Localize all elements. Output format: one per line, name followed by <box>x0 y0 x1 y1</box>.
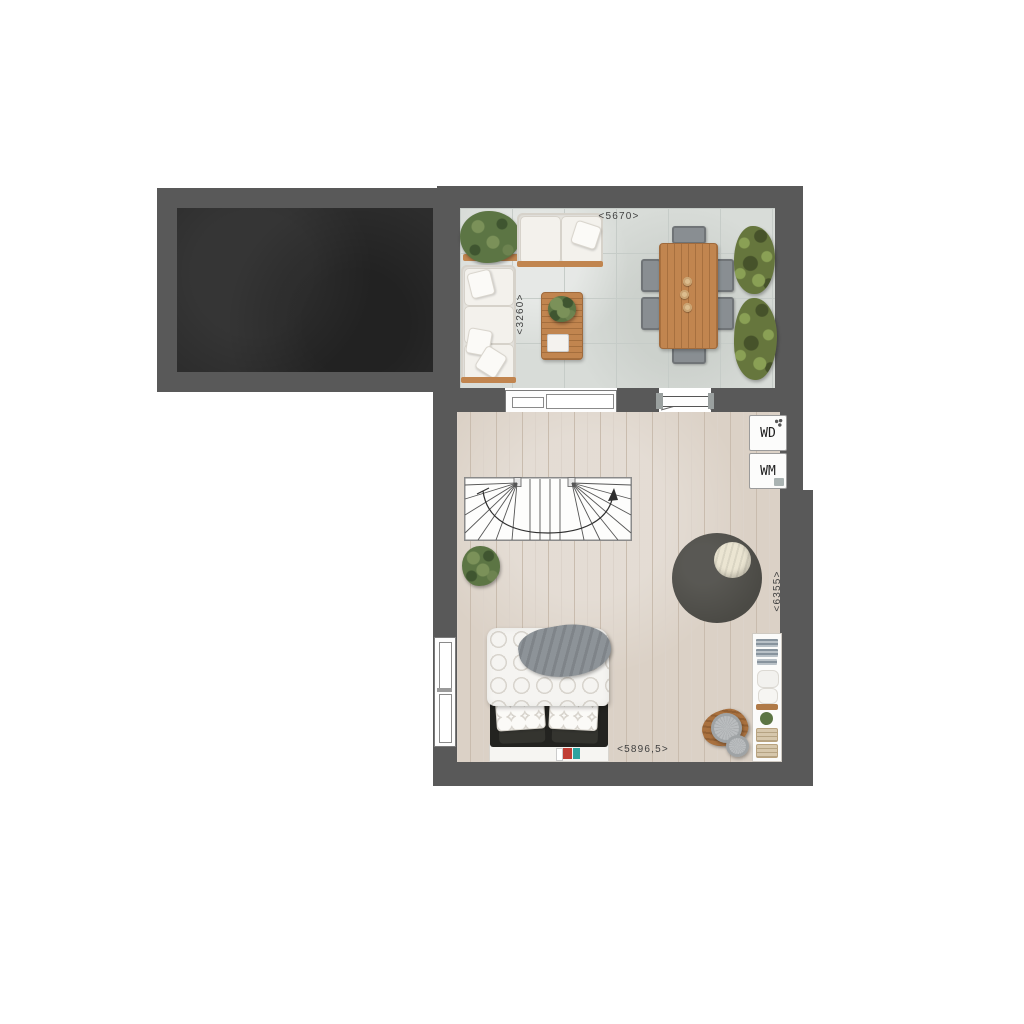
folded-towels <box>757 659 777 665</box>
dimension-label-studio-depth: <6355> <box>772 556 786 626</box>
floor-plan: <5670> <3260> WD <box>0 0 1024 1024</box>
terrace-wall-right <box>775 186 803 408</box>
table-candle <box>683 303 692 312</box>
sofa-left-wood-trim <box>461 377 516 383</box>
round-stool-small <box>726 735 749 757</box>
terrace-wall-top <box>437 186 803 208</box>
bench-book-white <box>556 748 563 761</box>
sofa-top-wood-trim <box>517 261 603 267</box>
terrace-door-hinge <box>656 393 663 409</box>
hedge-plant-lower <box>734 298 777 380</box>
table-candle <box>680 290 689 299</box>
bench-book-teal <box>573 748 580 759</box>
washer-dryer-label: WD <box>760 426 776 441</box>
sofa-left-section <box>461 265 516 383</box>
dimension-label-terrace-depth: <3260> <box>515 279 529 349</box>
dining-chair-left-2 <box>641 297 661 330</box>
hedge-plant-upper <box>734 226 775 294</box>
dryer-knob-dots <box>775 419 783 427</box>
folded-towels <box>756 649 778 657</box>
storage-basket <box>756 744 778 758</box>
shelf-wood-board <box>756 704 778 710</box>
terrace-window-pane-large <box>546 394 614 409</box>
garage-terrace-divider-wall <box>433 188 460 412</box>
dining-chair-left-1 <box>641 259 661 292</box>
dining-chair-top <box>672 226 706 244</box>
studio-wall-right-lower <box>780 490 813 786</box>
garage-wall-top <box>157 188 460 208</box>
washing-machine-unit: WM <box>749 453 787 489</box>
studio-wall-bottom <box>433 762 813 786</box>
studio-floor-plant <box>462 546 500 586</box>
terrace-window-pane-small <box>512 397 544 408</box>
studio-left-window <box>434 637 456 747</box>
staircase <box>464 477 632 541</box>
terrace-door-leaf <box>661 396 709 407</box>
garage-wall-bottom <box>157 372 460 392</box>
storage-basket <box>756 728 778 742</box>
terrace-window <box>505 390 617 413</box>
table-candle <box>683 277 692 286</box>
shelf-plant <box>760 712 773 725</box>
sofa-cushion <box>520 216 561 264</box>
studio-left-window-pane-top <box>439 642 452 691</box>
coffee-table-tray <box>547 334 569 352</box>
washing-machine-label: WM <box>760 464 776 479</box>
washer-dryer-unit: WD <box>749 415 787 451</box>
dimension-label-studio-width: <5896,5> <box>608 744 678 758</box>
window-handle <box>437 688 452 692</box>
studio-left-window-pane-bottom <box>439 694 452 743</box>
folded-towels <box>756 639 778 647</box>
garage-floor <box>177 208 433 372</box>
dimension-label-terrace-width: <5670> <box>584 211 654 225</box>
coffee-table-plant <box>548 296 576 322</box>
terrace-door-latch <box>708 393 714 409</box>
beanbag-chair <box>714 542 751 578</box>
washer-detail <box>774 478 784 486</box>
towel-roll <box>757 670 779 688</box>
bench-book-red <box>563 748 572 759</box>
round-rug <box>672 533 762 623</box>
garage-wall-left <box>157 188 177 392</box>
shelf-unit <box>752 633 782 762</box>
towel-roll <box>758 688 778 704</box>
terrace-corner-plant <box>460 211 520 263</box>
